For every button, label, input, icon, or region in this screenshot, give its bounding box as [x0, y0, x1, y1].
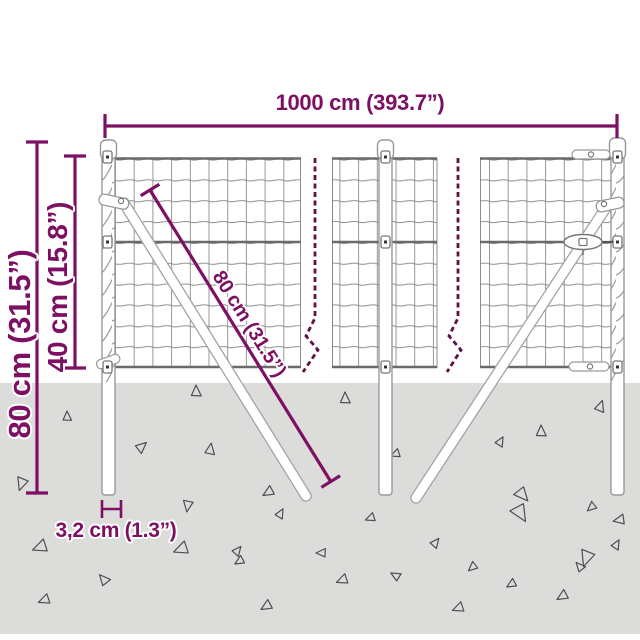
clamp [103, 361, 112, 373]
clamp [103, 151, 112, 163]
clamp [381, 236, 390, 248]
mesh-height-dimension-label: 40 cm (15.8”) [42, 187, 74, 387]
clamp [613, 151, 622, 163]
break-line-right [447, 158, 461, 372]
break-line-left [303, 158, 318, 372]
clamp [103, 236, 112, 248]
clamp [381, 151, 390, 163]
middle-post [378, 140, 394, 495]
post-diameter-dimension-label: 3,2 cm (1.3”) [0, 518, 236, 544]
clamp [613, 361, 622, 373]
width-dimension-label: 1000 cm (393.7”) [200, 89, 520, 117]
mesh-panels [115, 158, 612, 368]
total-height-dimension-label: 80 cm (31.5”) [2, 234, 38, 454]
ground [0, 383, 640, 634]
clamp [613, 236, 622, 248]
width-dimension-line [105, 114, 617, 138]
clamp [381, 361, 390, 373]
fence-dimension-diagram: 1000 cm (393.7”) 80 cm (31.5”) 40 cm (15… [0, 0, 640, 640]
